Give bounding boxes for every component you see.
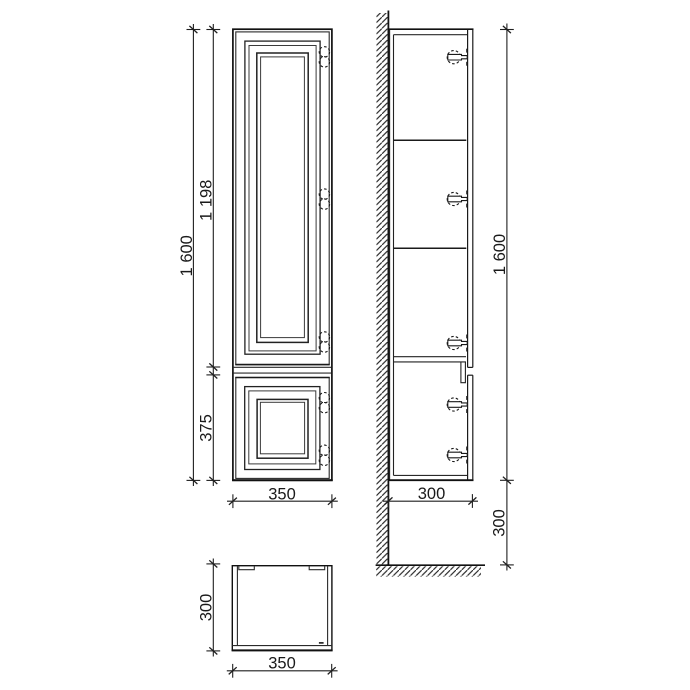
svg-text:350: 350 [268,654,296,672]
svg-text:350: 350 [268,485,296,503]
svg-text:300: 300 [197,594,215,622]
svg-text:1 198: 1 198 [198,180,216,221]
svg-text:375: 375 [198,414,216,442]
svg-text:300: 300 [418,485,446,503]
svg-text:1 600: 1 600 [491,234,509,275]
svg-text:300: 300 [491,509,509,537]
svg-text:1 600: 1 600 [178,235,196,276]
